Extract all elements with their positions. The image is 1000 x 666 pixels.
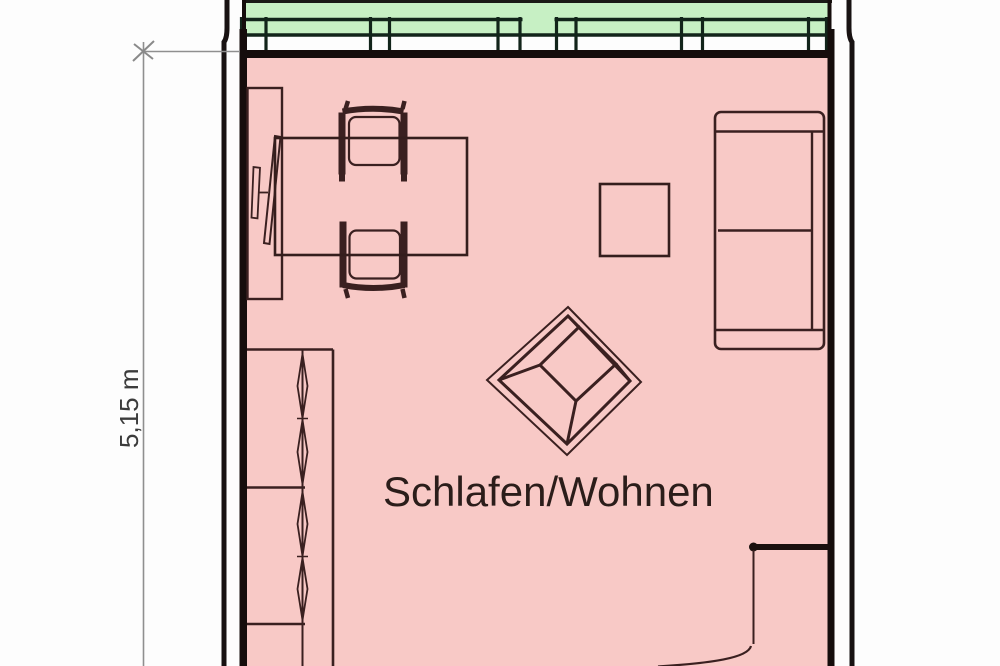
svg-text:5,15 m: 5,15 m xyxy=(114,369,144,449)
svg-text:Schlafen/Wohnen: Schlafen/Wohnen xyxy=(383,468,714,515)
